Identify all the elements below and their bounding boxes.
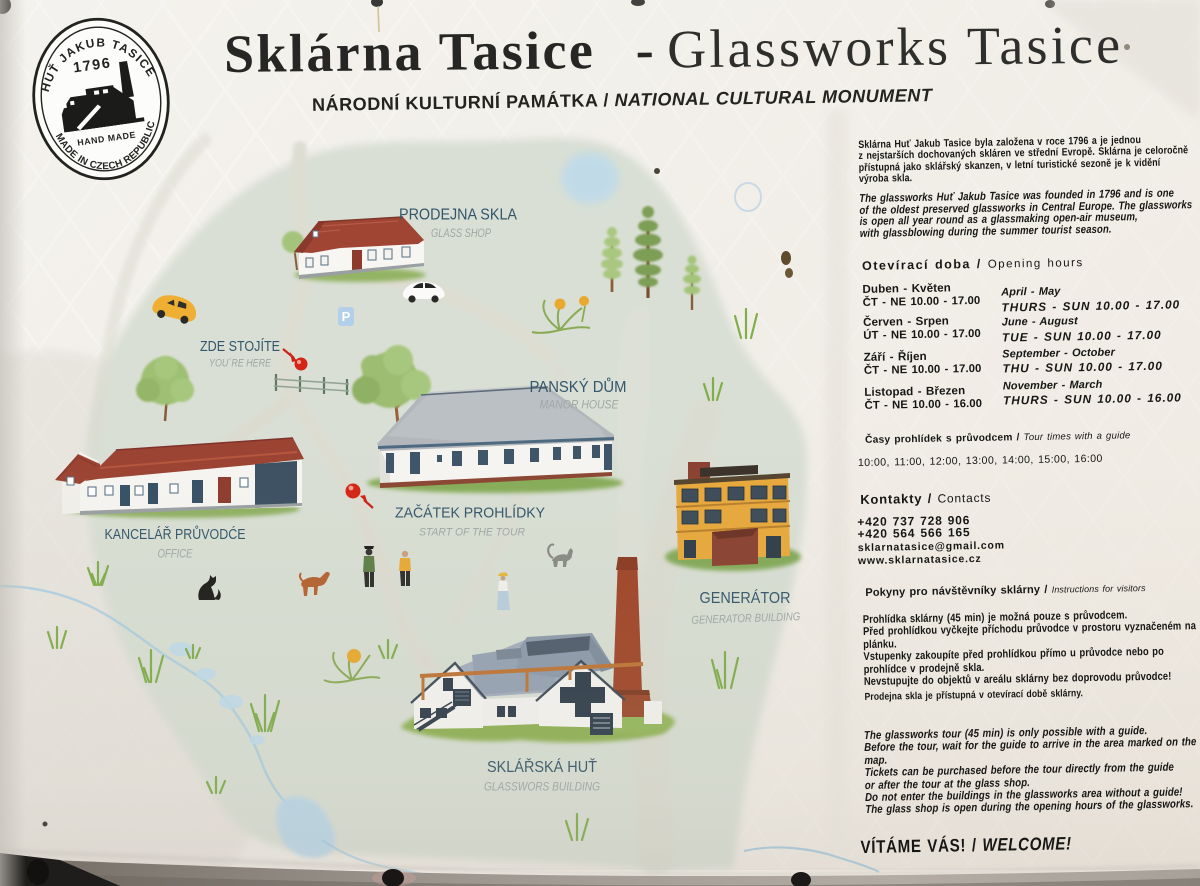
svg-text:ZDE STOJÍTE: ZDE STOJÍTE: [200, 338, 280, 355]
svg-text:GLASS SHOP: GLASS SHOP: [431, 226, 491, 240]
svg-text:YOU´RE HERE: YOU´RE HERE: [209, 358, 272, 370]
svg-text:PRODEJNA SKLA: PRODEJNA SKLA: [399, 207, 517, 224]
svg-text:MANOR HOUSE: MANOR HOUSE: [540, 398, 620, 412]
svg-text:PANSKÝ DŮM: PANSKÝ DŮM: [530, 377, 627, 396]
svg-text:P: P: [342, 309, 351, 324]
